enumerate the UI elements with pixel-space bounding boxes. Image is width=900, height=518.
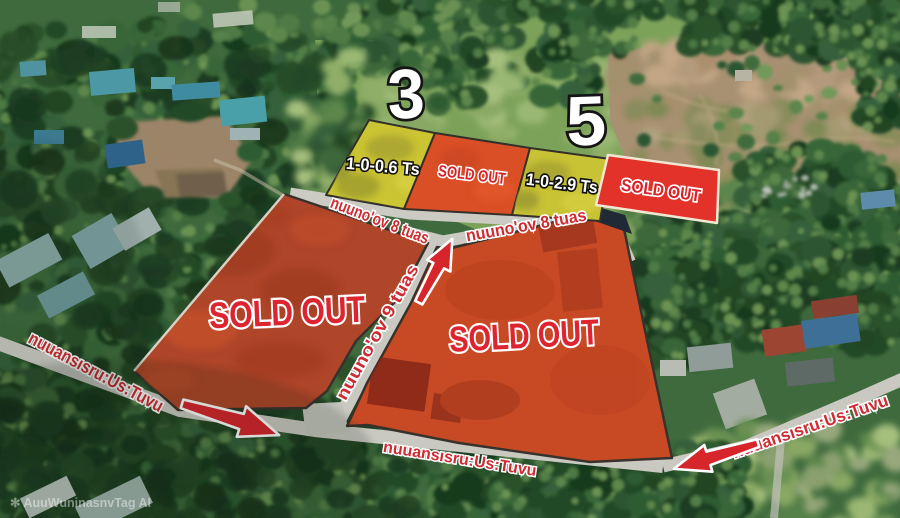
svg-text:✻ AuuWuninasnvTag AI: ✻ AuuWuninasnvTag AI: [10, 496, 151, 510]
svg-text:SOLD OUT: SOLD OUT: [208, 289, 366, 337]
svg-text:3: 3: [386, 54, 426, 133]
svg-text:5: 5: [565, 81, 608, 160]
svg-text:SOLD OUT: SOLD OUT: [448, 311, 600, 360]
